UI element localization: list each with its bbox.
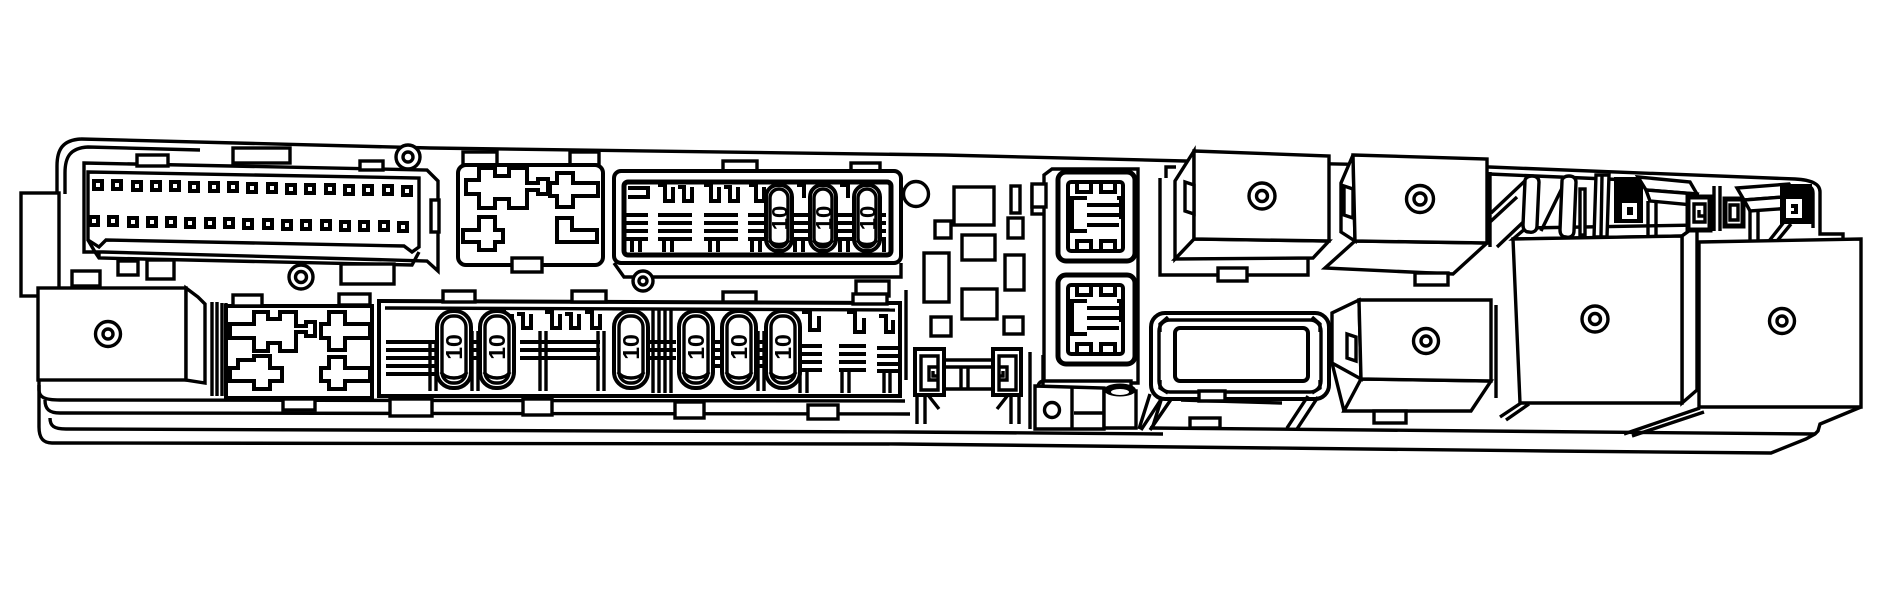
svg-text:10: 10 (768, 206, 793, 230)
svg-text:10: 10 (683, 334, 709, 360)
svg-text:10: 10 (856, 206, 881, 230)
svg-text:10: 10 (770, 334, 796, 360)
svg-text:10: 10 (618, 334, 644, 360)
svg-text:10: 10 (441, 334, 467, 360)
svg-text:10: 10 (812, 206, 837, 230)
svg-text:10: 10 (484, 334, 510, 360)
svg-text:10: 10 (726, 334, 752, 360)
